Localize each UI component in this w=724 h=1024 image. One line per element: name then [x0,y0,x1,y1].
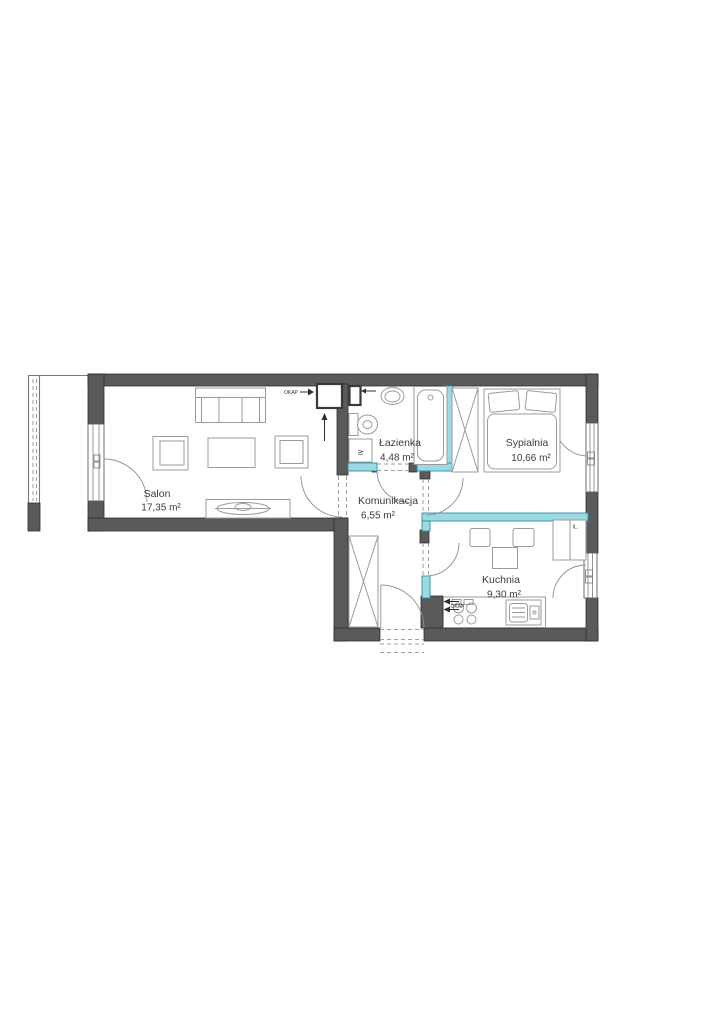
balcony-door-arc-kitchen [553,565,586,598]
window-bedroom [586,423,598,492]
room-bathroom-name: Łazienka [379,437,421,449]
hood-label-top: OKAP [284,390,299,396]
bedroom-door-arc [426,478,463,515]
wardrobe-hallway [349,536,378,627]
vent-direction-arrow [322,413,328,441]
room-salon-area: 17,35 m² [141,503,181,514]
armchair-left [153,437,188,471]
vent-shaft-bathroom [350,386,361,405]
salon-furniture [153,388,328,518]
chair-right [513,529,534,547]
armchair-right [275,436,308,468]
room-bathroom-area: 4,48 m² [380,453,415,464]
sofa [196,388,266,423]
fridge: lL. [553,520,586,560]
entrance-door-arc [381,585,424,628]
room-hallway-area: 6,55 m² [361,511,396,522]
room-hallway-name: Komunikacja [358,495,418,507]
balcony-left [28,375,88,531]
dining-set [470,529,534,569]
room-bedroom-area: 10,66 m² [511,453,551,464]
vent-arrow-bathroom [361,389,376,394]
room-bedroom-name: Sypialnia [506,437,549,449]
room-salon-name: Salon [144,488,171,500]
hood-label-kitchen: OKAP [451,604,466,610]
room-kitchen-name: Kuchnia [482,574,520,586]
wardrobe-bedroom [452,388,478,472]
toilet [349,414,378,436]
dining-table [493,548,518,569]
fridge-label: lL. [573,525,578,531]
salon-door-arc [301,476,342,517]
tv-stand [206,500,290,519]
floor-plan-page: ≥ [0,0,724,1024]
washing-machine-symbol: ≥ [357,448,364,457]
coffee-table [208,438,255,468]
floor-plan: ≥ [0,0,724,1024]
window-salon [88,424,104,501]
room-kitchen-area: 9,30 m² [487,590,522,601]
bathtub [414,387,447,465]
balcony-door-arc-salon [104,459,147,502]
vent-shaft-salon [317,384,342,408]
kitchen-door-arc [426,543,459,576]
hood-top: OKAP [284,389,314,397]
washing-machine: ≥ [349,439,372,462]
washbasin [381,387,404,405]
chair-left [470,529,490,547]
